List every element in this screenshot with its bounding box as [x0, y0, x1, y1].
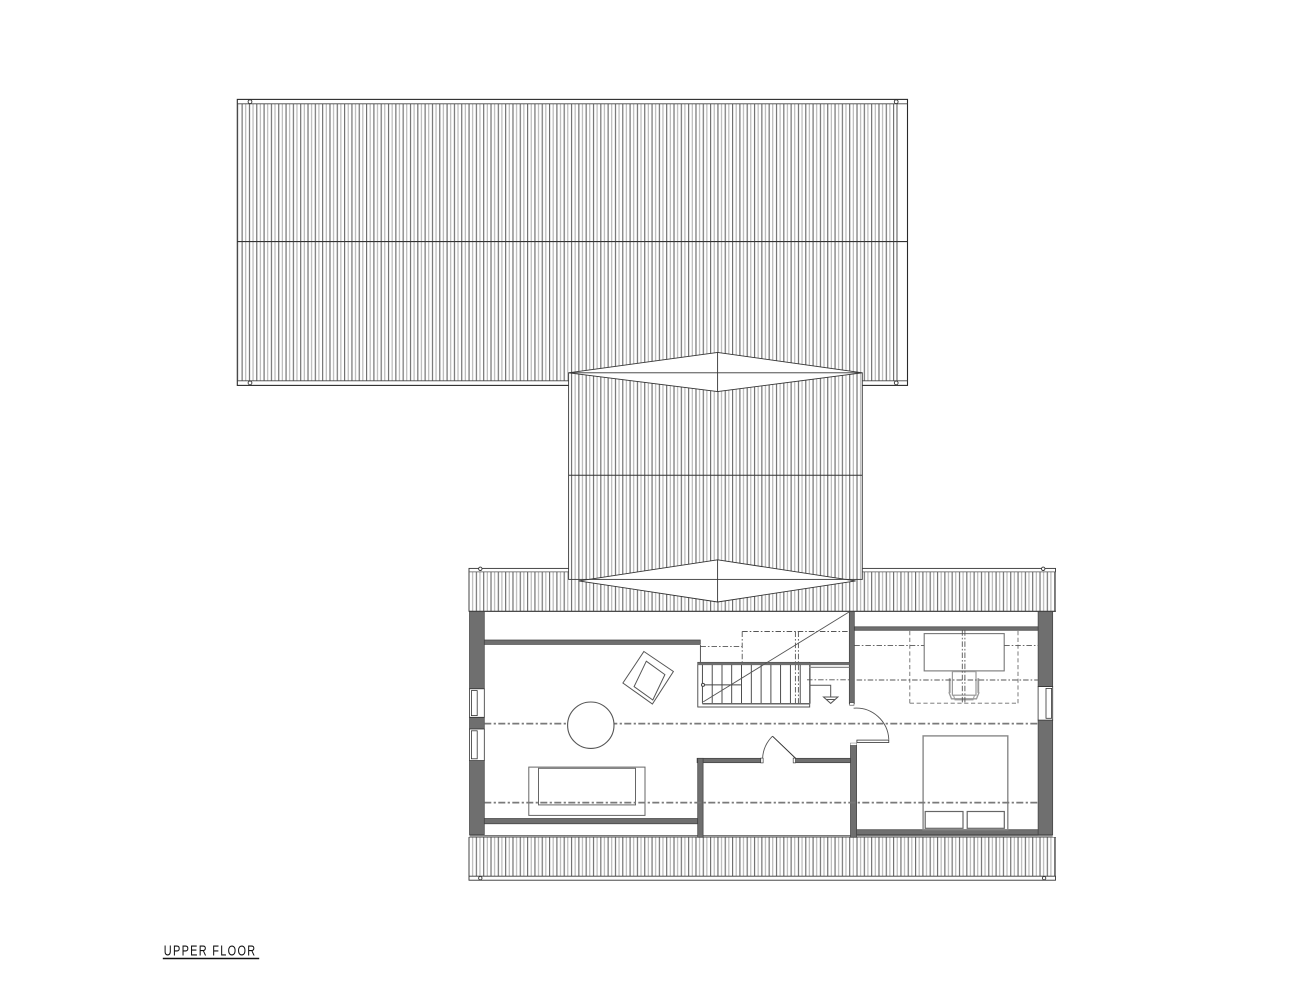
svg-text:UPPER FLOOR: UPPER FLOOR: [164, 942, 257, 959]
